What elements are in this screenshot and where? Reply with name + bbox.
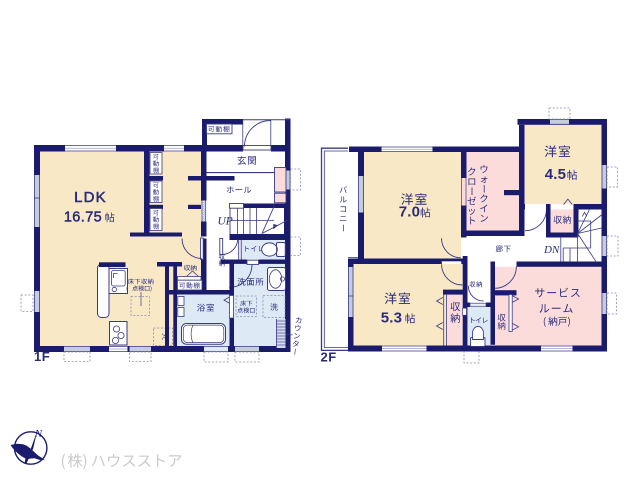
svg-text:2F: 2F: [321, 349, 337, 364]
svg-text:5.3: 5.3: [381, 310, 402, 327]
svg-text:N: N: [34, 428, 43, 440]
svg-text:LDK: LDK: [74, 189, 107, 206]
svg-text:DN: DN: [543, 244, 560, 256]
svg-text:7.0: 7.0: [399, 204, 420, 221]
svg-text:UP: UP: [218, 216, 233, 228]
svg-text:4.5: 4.5: [545, 166, 566, 183]
svg-text:16.75: 16.75: [64, 209, 102, 225]
svg-text:1F: 1F: [34, 349, 50, 364]
